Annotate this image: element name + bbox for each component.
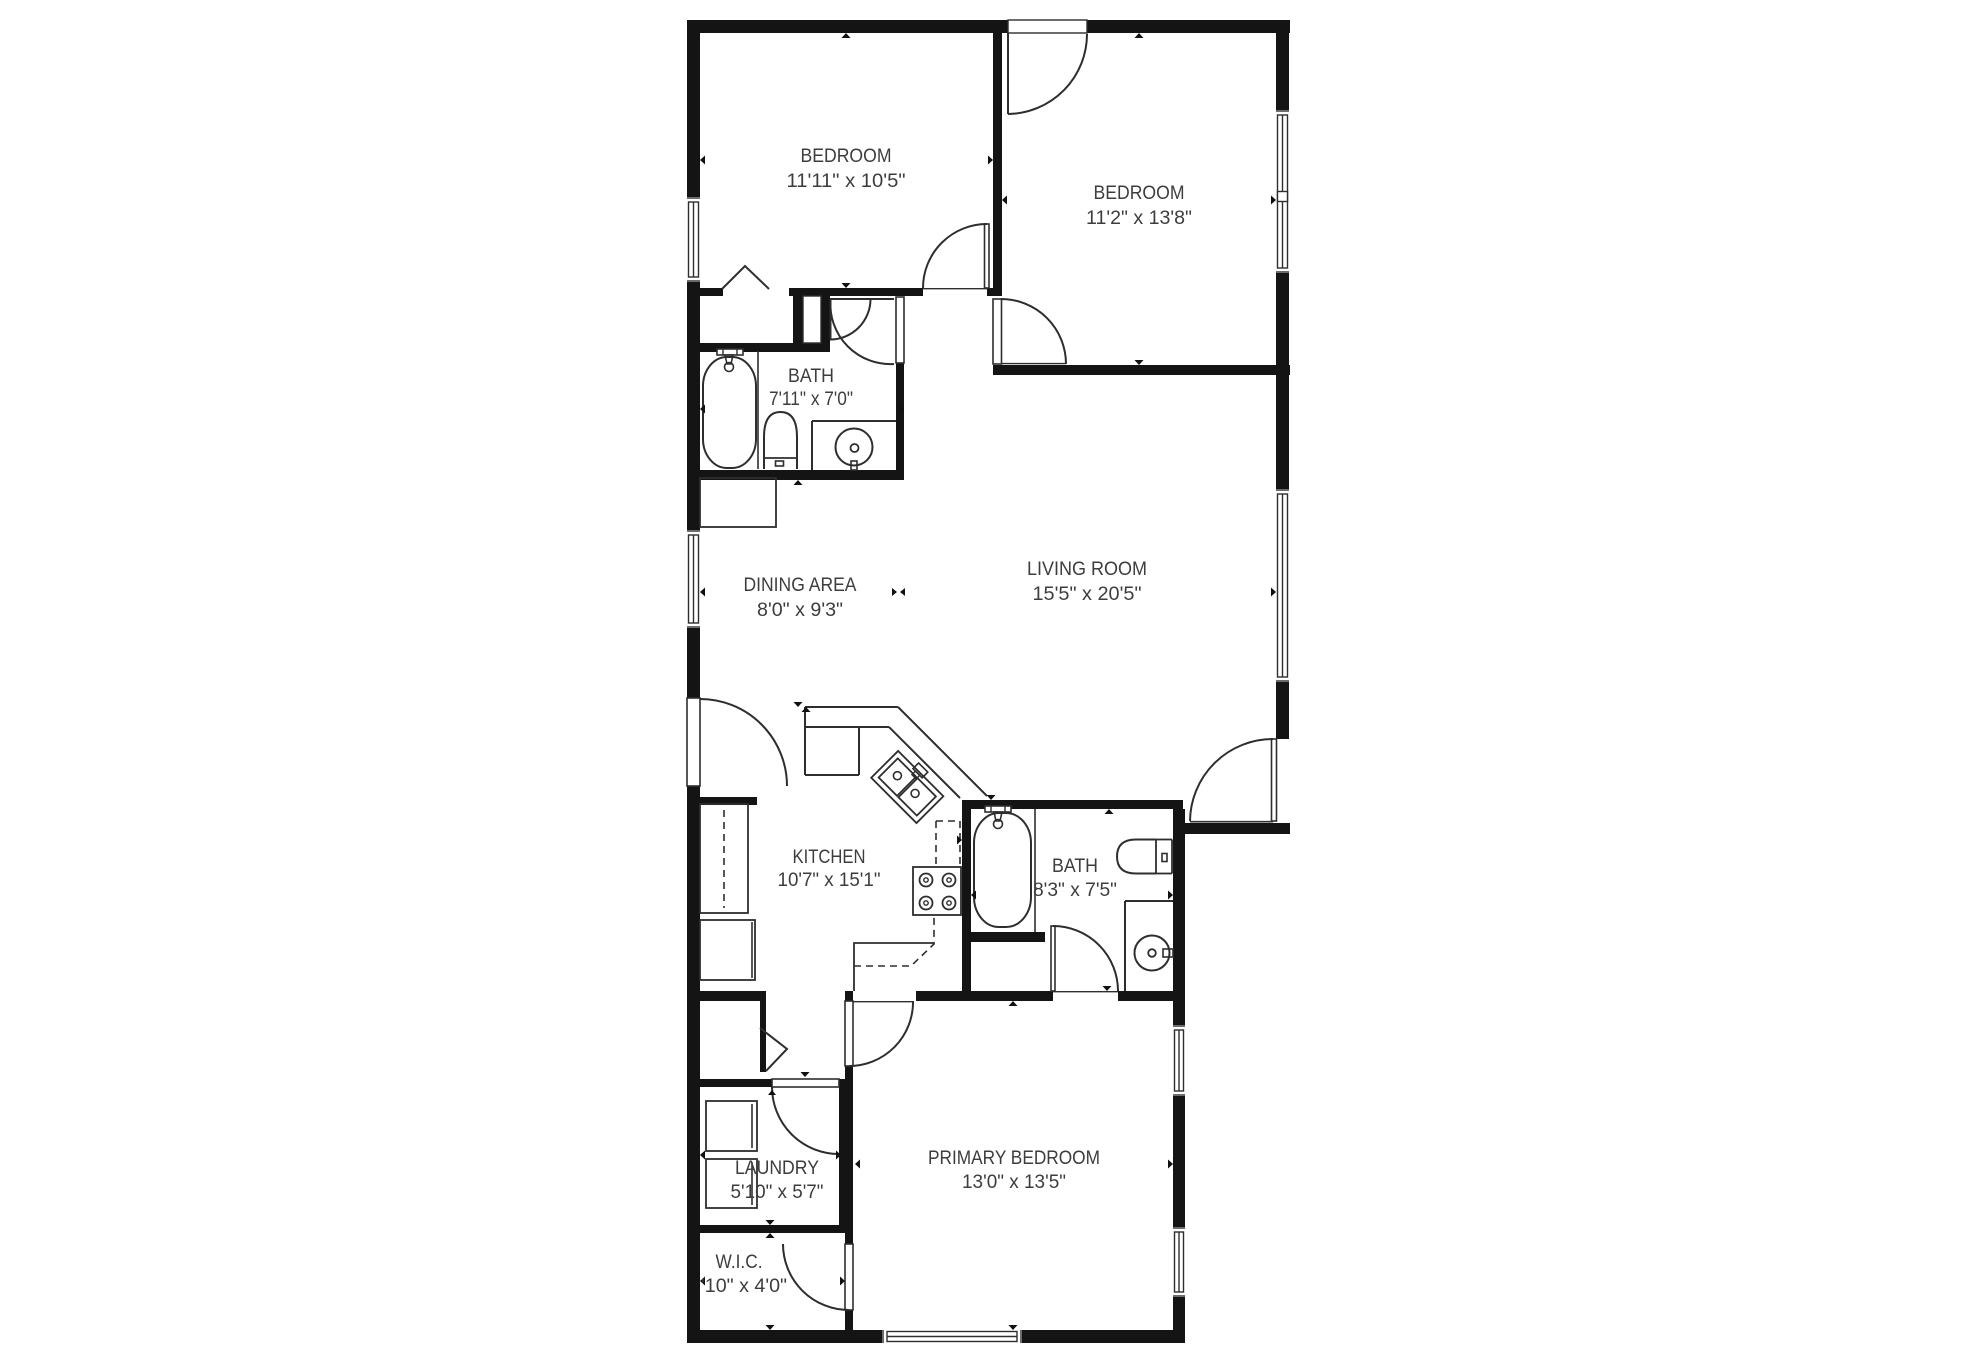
svg-text:LIVING ROOM: LIVING ROOM bbox=[1027, 559, 1147, 580]
svg-text:LAUNDRY: LAUNDRY bbox=[735, 1158, 819, 1179]
svg-text:5'10" x 5'7": 5'10" x 5'7" bbox=[731, 1182, 824, 1203]
svg-text:PRIMARY BEDROOM: PRIMARY BEDROOM bbox=[928, 1148, 1100, 1169]
svg-text:11'2" x 13'8": 11'2" x 13'8" bbox=[1086, 208, 1192, 229]
svg-text:BATH: BATH bbox=[788, 366, 834, 387]
svg-text:7'11" x 7'0": 7'11" x 7'0" bbox=[769, 389, 853, 410]
svg-text:13'0" x 13'5": 13'0" x 13'5" bbox=[962, 1172, 1066, 1193]
svg-text:BEDROOM: BEDROOM bbox=[801, 146, 892, 167]
svg-text:'10" x 4'0": '10" x 4'0" bbox=[701, 1276, 787, 1297]
svg-text:8'0" x 9'3": 8'0" x 9'3" bbox=[757, 600, 843, 621]
svg-text:15'5" x 20'5": 15'5" x 20'5" bbox=[1033, 584, 1142, 605]
svg-text:10'7" x 15'1": 10'7" x 15'1" bbox=[778, 870, 881, 891]
svg-text:DINING AREA: DINING AREA bbox=[744, 575, 857, 596]
svg-text:8'3" x 7'5": 8'3" x 7'5" bbox=[1033, 880, 1117, 901]
svg-text:BEDROOM: BEDROOM bbox=[1094, 183, 1185, 204]
svg-text:W.I.C.: W.I.C. bbox=[716, 1252, 763, 1273]
svg-text:BATH: BATH bbox=[1052, 856, 1098, 877]
svg-text:11'11" x 10'5": 11'11" x 10'5" bbox=[787, 171, 906, 192]
svg-text:KITCHEN: KITCHEN bbox=[793, 847, 866, 868]
